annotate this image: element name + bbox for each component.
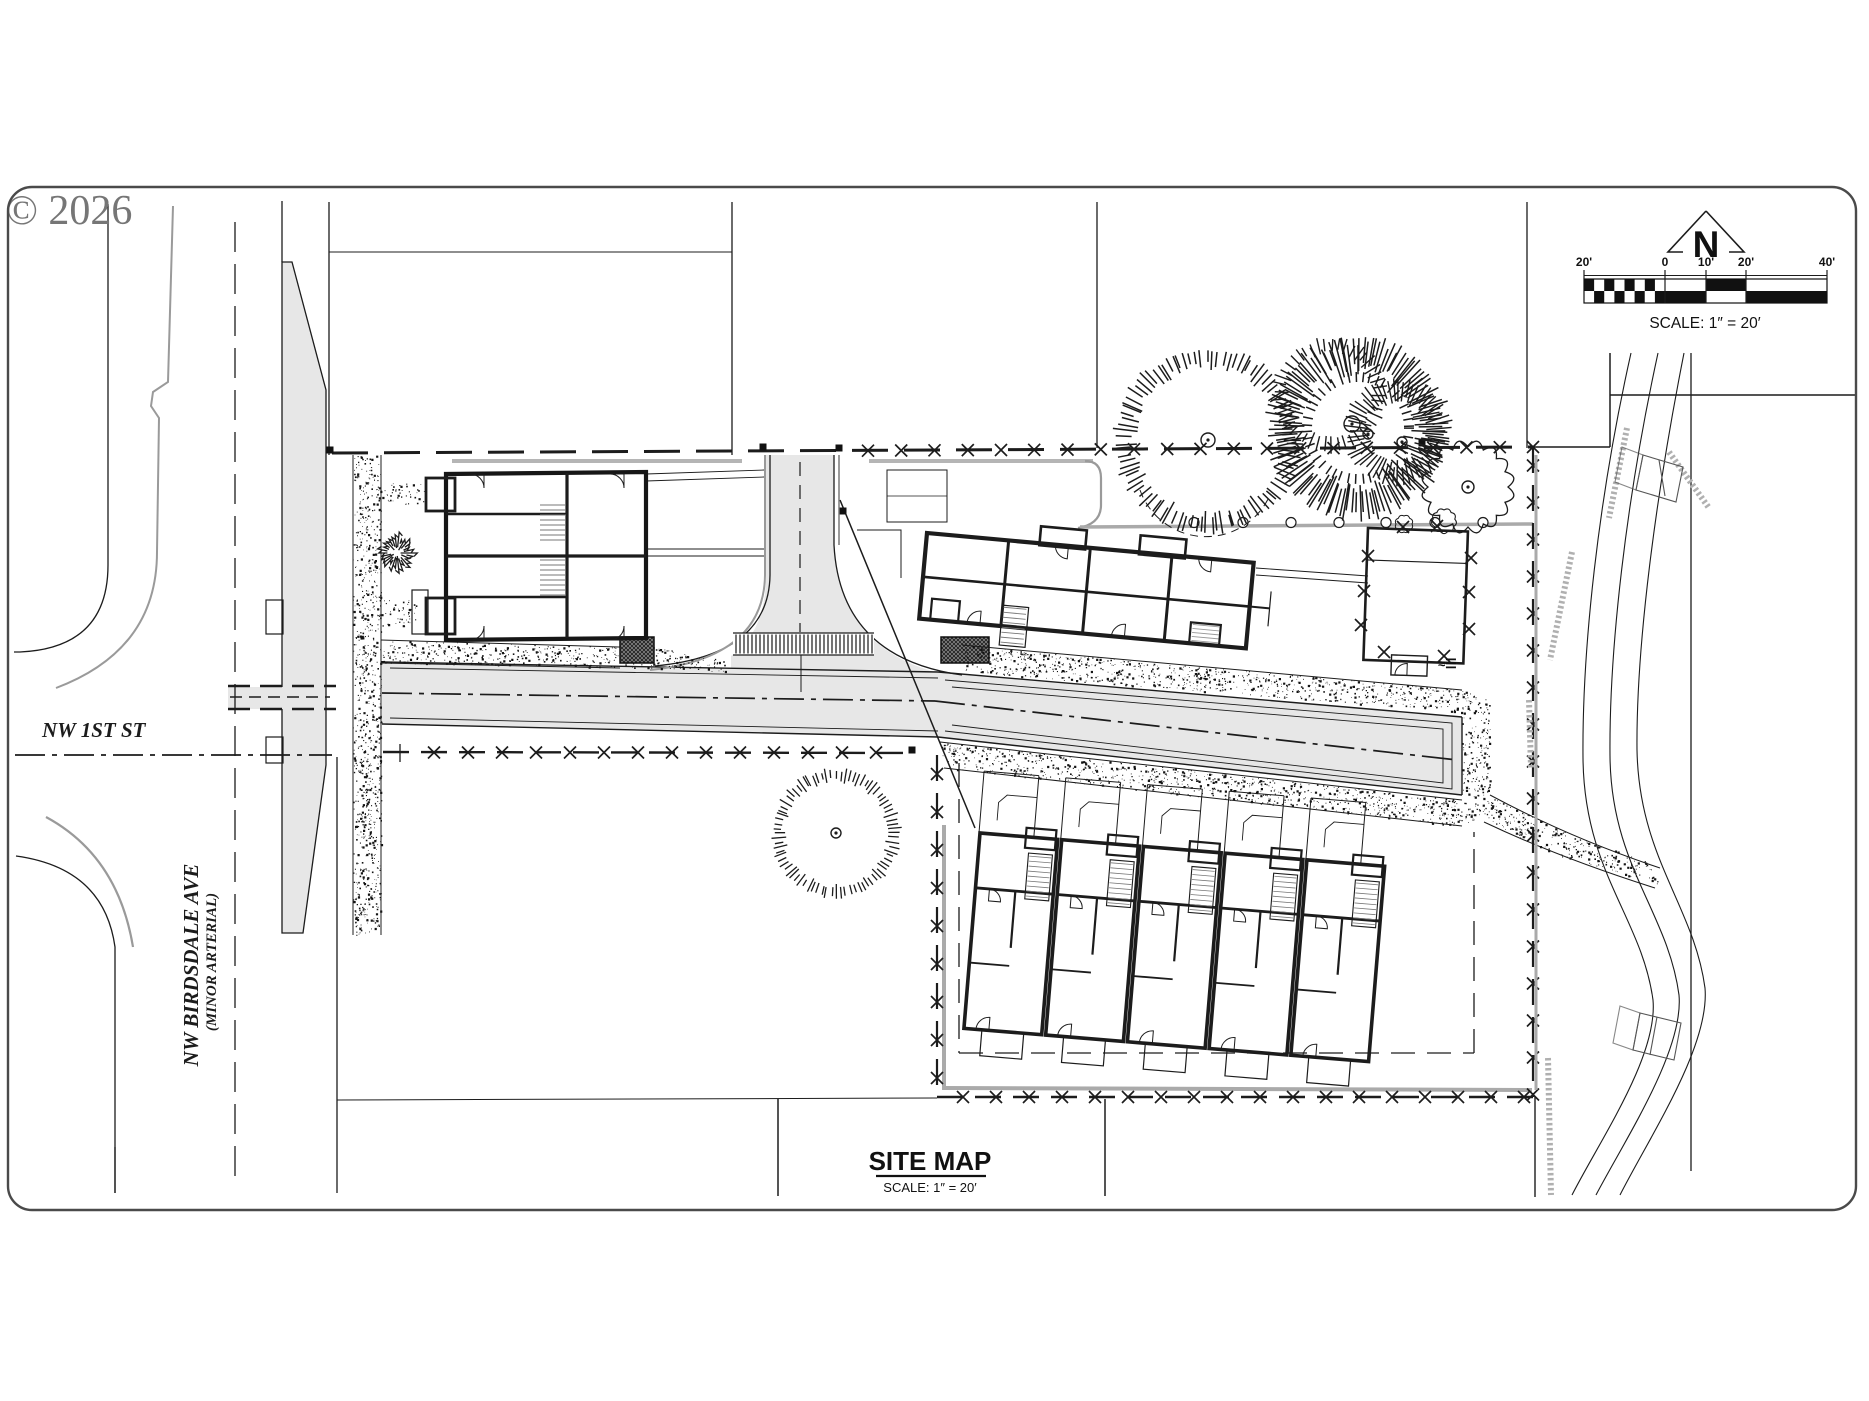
svg-text:NW BIRDSDALE AVE: NW BIRDSDALE AVE: [179, 864, 203, 1068]
svg-text:© 2026: © 2026: [6, 188, 132, 234]
svg-text:NW 1ST ST: NW 1ST ST: [41, 718, 147, 742]
svg-text:SCALE: 1″ = 20′: SCALE: 1″ = 20′: [883, 1180, 977, 1195]
svg-text:40': 40': [1819, 255, 1835, 269]
svg-text:0: 0: [1662, 255, 1669, 269]
svg-text:20': 20': [1738, 255, 1754, 269]
svg-text:(MINOR ARTERIAL): (MINOR ARTERIAL): [204, 893, 220, 1031]
svg-text:SITE MAP: SITE MAP: [869, 1146, 992, 1176]
svg-text:≈☰: ≈☰: [1438, 656, 1457, 671]
svg-text:10': 10': [1698, 255, 1714, 269]
svg-text:SCALE: 1″ = 20′: SCALE: 1″ = 20′: [1649, 315, 1760, 332]
svg-text:20': 20': [1576, 255, 1592, 269]
